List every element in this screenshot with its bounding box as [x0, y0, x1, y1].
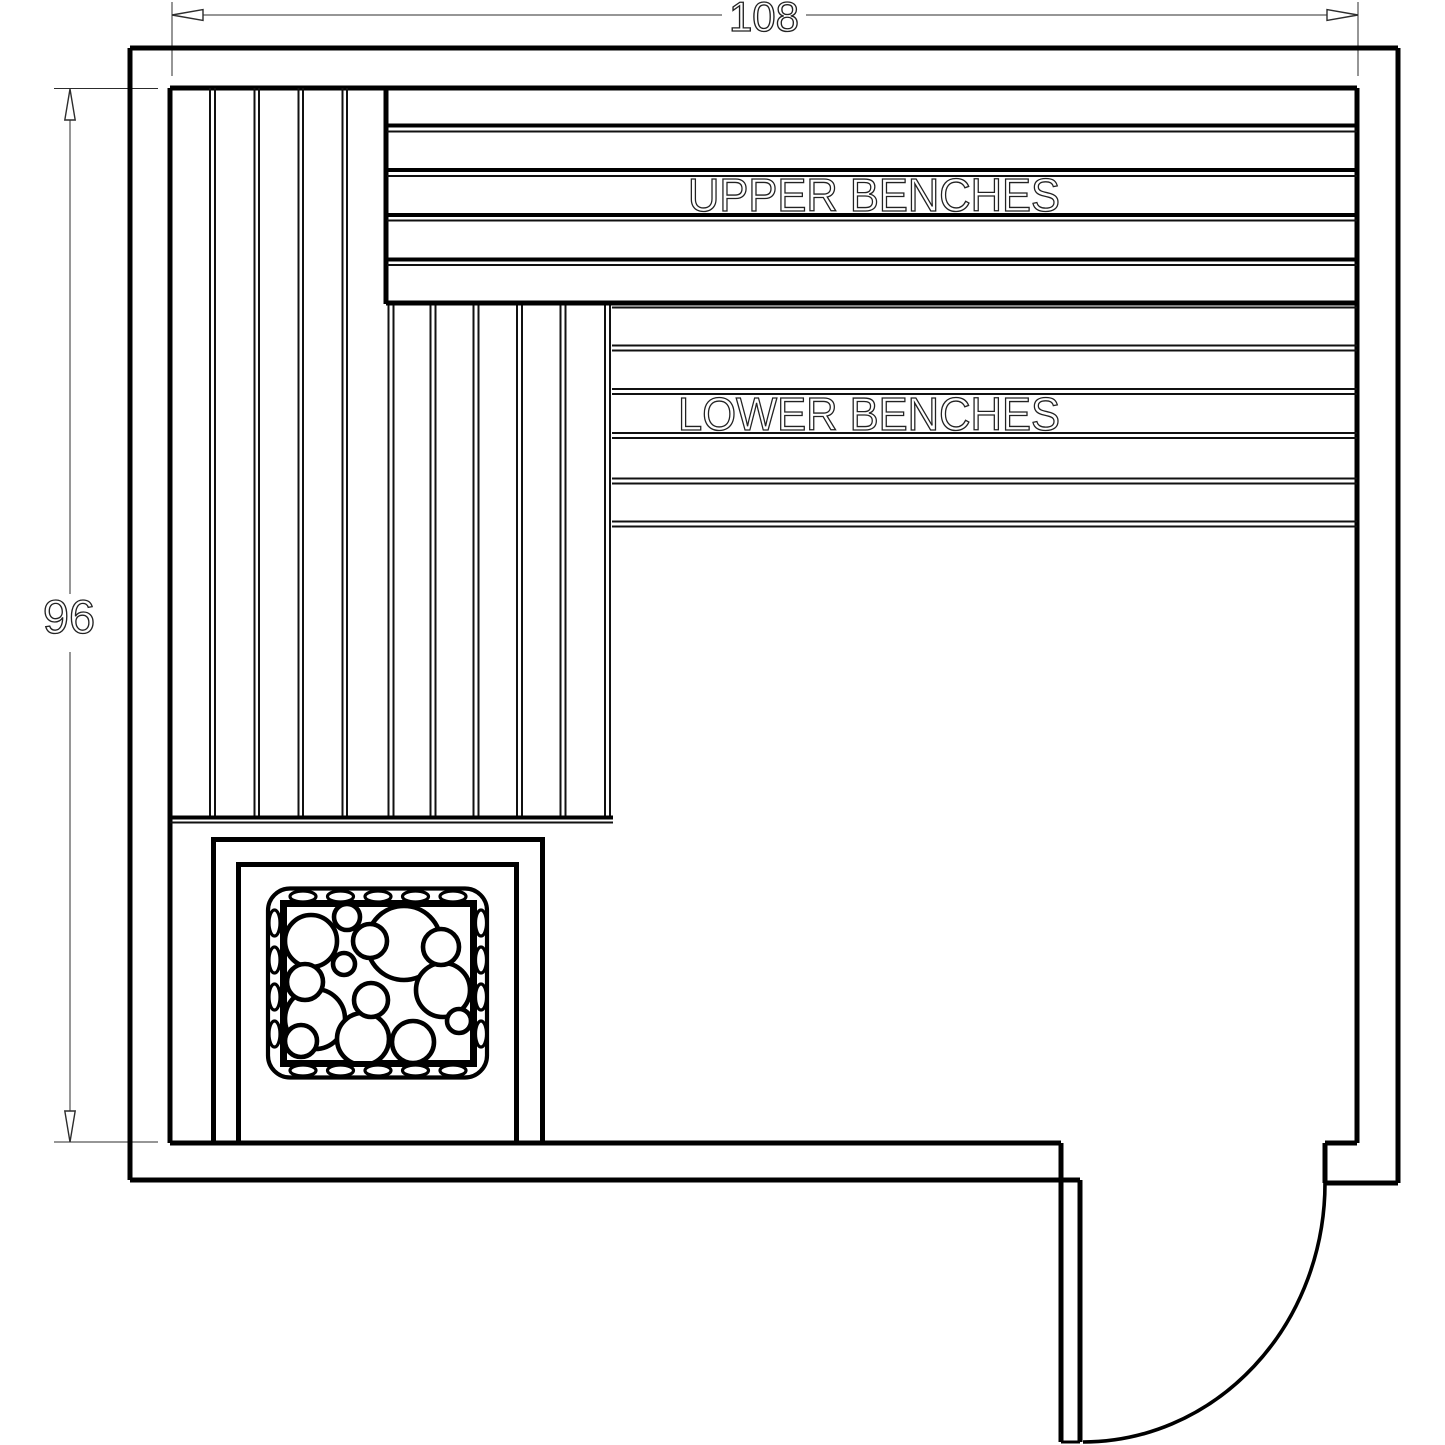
- heater-rocks: [285, 904, 471, 1065]
- left-bench-planks: [210, 88, 394, 816]
- sauna-heater: [214, 840, 543, 1144]
- arrowhead-right-icon: [1327, 10, 1358, 21]
- sauna-floor-plan: 108 96: [0, 0, 1445, 1445]
- door-swing-arc: [1083, 1183, 1325, 1442]
- arrowhead-left-icon: [172, 10, 203, 21]
- upper-benches-label: UPPER BENCHES: [688, 169, 1060, 221]
- middle-bench-planks: [431, 305, 611, 816]
- plank-band-bottom-edge: [170, 818, 613, 823]
- height-dimension-label: 96: [43, 590, 95, 643]
- width-dimension-label: 108: [729, 0, 799, 40]
- arrowhead-down-icon: [65, 1111, 75, 1142]
- lower-benches-label: LOWER BENCHES: [678, 388, 1060, 440]
- arrowhead-up-icon: [65, 89, 75, 120]
- door: [1061, 1143, 1325, 1442]
